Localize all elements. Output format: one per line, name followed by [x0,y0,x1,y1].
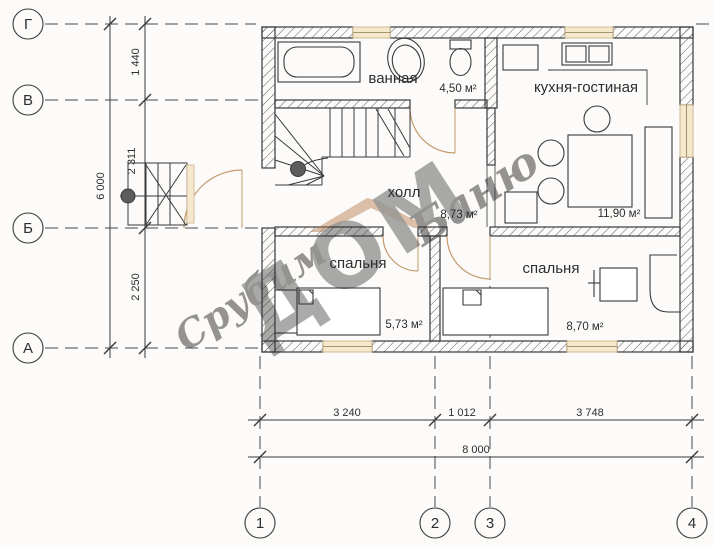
porch-post [121,189,135,203]
corner-unit [650,255,680,312]
axis-label-a: А [23,340,33,357]
dim-left-seg1: 1 440 [130,48,142,76]
desk [600,268,637,301]
axis-label-v: В [23,92,33,109]
toilet [450,40,471,76]
axis-label-3: 3 [486,515,494,532]
furniture-kitchen [503,43,672,223]
room-area-kitchen: 11,90 м² [598,208,641,220]
bed2 [443,288,548,335]
dim-left-seg3: 2 250 [130,273,142,301]
bathtub [278,42,360,82]
dim-left-total: 6 000 [95,172,107,200]
axis-label-2: 2 [431,515,439,532]
sofa [645,127,672,218]
dim-bottom-seg2: 1 012 [448,407,476,419]
room-label-bathroom: ванная [368,70,417,87]
room-area-bathroom: 4,50 м² [439,83,476,95]
dim-bottom-seg3: 3 748 [576,407,604,419]
chair [584,106,610,132]
axis-label-1: 1 [256,515,264,532]
chair [538,140,564,166]
floor-plan-drawing: Г В Б А 1 2 3 4 [0,0,713,548]
porch-threshold [187,165,194,223]
dining-table [568,135,632,207]
axis-label-4: 4 [688,515,696,532]
room-area-bedroom1: 5,73 м² [385,319,422,331]
room-label-bedroom2: спальня [523,260,580,277]
floor-plan-sheet: Г В Б А 1 2 3 4 [0,0,713,548]
room-area-bedroom2: 8,70 м² [566,321,603,333]
room-label-kitchen: кухня-гостиная [534,79,638,96]
axis-label-b: Б [23,220,33,237]
dim-bottom-total: 8 000 [462,444,490,456]
fridge [503,45,538,70]
dim-bottom-seg1: 3 240 [333,407,361,419]
stair-post [291,162,306,177]
axis-label-g: Г [24,16,32,33]
